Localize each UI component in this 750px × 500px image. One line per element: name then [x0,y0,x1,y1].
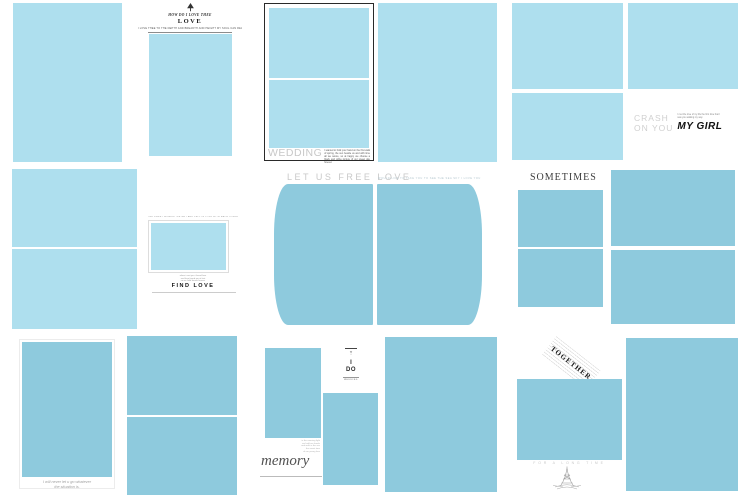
together-subtitle: FOR A LONG TIME [517,461,622,465]
find-love-top-note: THE SWEET MOMENT WE MET AND FELL IN LOVE… [146,216,240,218]
photo-placeholder[interactable] [611,170,735,246]
photo-placeholder[interactable] [13,3,122,162]
crash-right-column: I met the love of my life the first time… [677,114,722,133]
wedding-title: WEDDING [268,148,322,159]
circle-ornament-icon: ○ [340,354,362,357]
divider-rule [152,292,236,293]
photo-placeholder[interactable] [269,80,369,148]
photo-placeholder[interactable] [385,337,497,492]
divider-rule [343,377,359,378]
photo-frame [148,220,229,273]
crash-title-line2: ON YOU [634,124,673,134]
photo-placeholder[interactable] [323,393,378,485]
template-crash-on-you[interactable]: CRASH ON YOU I met the love of my life t… [505,0,750,165]
photo-placeholder[interactable] [518,190,603,247]
photo-placeholder[interactable] [127,417,237,495]
crash-note: I met the love of my life the first time… [677,114,721,120]
photo-placeholder[interactable] [626,338,738,491]
love-eyebrow: HOW DO I LOVE THEE [138,13,242,17]
photo-placeholder[interactable] [512,93,623,160]
template-sometimes[interactable]: SOMETIMES [505,165,750,335]
love-heading-block: HOW DO I LOVE THEE LOVE I LOVE THEE TO T… [138,3,242,33]
photo-placeholder[interactable] [12,249,137,329]
find-love-column: THE SWEET MOMENT WE MET AND FELL IN LOVE… [146,165,240,335]
template-love[interactable]: HOW DO I LOVE THEE LOVE I LOVE THEE TO T… [0,0,250,165]
photo-placeholder[interactable] [127,336,237,415]
crash-title: CRASH ON YOU [634,114,673,133]
caption-line: the situation is. [20,485,114,490]
template-wedding[interactable]: WEDDING I wanted to hold your hand on th… [250,0,505,165]
photo-placeholder[interactable] [628,3,738,89]
never-let-go-caption: I will never let u go whatever the situa… [20,480,114,489]
photo-placeholder[interactable] [149,34,232,156]
template-free-love[interactable]: LET US FREE LOVE WOULD LIKE TO TAKE YOU … [250,165,505,335]
template-together[interactable]: TOGETHER FOR A LONG TIME [505,335,750,500]
photo-placeholder[interactable] [517,379,622,460]
template-sheet: HOW DO I LOVE THEE LOVE I LOVE THEE TO T… [0,0,750,500]
template-find-love[interactable]: THE SWEET MOMENT WE MET AND FELL IN LOVE… [0,165,250,335]
crash-subtitle: MY GIRL [677,121,722,132]
photo-placeholder[interactable] [12,169,137,247]
template-never-let-go[interactable]: I will never let u go whatever the situa… [0,335,250,500]
i-do-block: ✳ ○ I DO WEDDING [340,348,362,381]
divider-rule [148,32,232,33]
photo-placeholder[interactable] [274,184,373,325]
divider-rule [260,476,322,477]
divider-rule [345,348,357,349]
find-love-notes: when i met you i found love and love fou… [146,275,240,283]
photo-placeholder[interactable] [611,250,735,324]
crash-text-block: CRASH ON YOU I met the love of my life t… [634,114,722,133]
free-love-note: WOULD LIKE TO TAKE YOU TO SEE THE SEA SK… [378,177,498,180]
photo-placeholder[interactable] [151,223,226,270]
together-title-text: TOGETHER [549,345,593,382]
love-title: LOVE [138,18,242,25]
photo-placeholder[interactable] [378,3,497,162]
wedding-footer: WEDDING I wanted to hold your hand on th… [268,148,370,165]
photo-placeholder[interactable] [269,8,369,78]
i-do-word1: I [340,360,362,367]
bordered-page: WEDDING I wanted to hold your hand on th… [264,3,374,161]
photo-placeholder[interactable] [518,249,603,307]
photo-placeholder[interactable] [377,184,482,325]
sometimes-title: SOMETIMES [530,172,597,183]
i-do-word2: DO [340,367,362,374]
memory-title: memory [261,453,325,470]
template-memory[interactable]: ✳ ○ I DO WEDDING in the morning light we… [250,335,505,500]
tree-icon [186,3,195,12]
wedding-caption: I wanted to hold your hand on the first … [324,150,370,165]
photo-placeholder[interactable] [512,3,623,89]
love-caption: I LOVE THEE TO THE DEPTH AND BREADTH AND… [138,27,242,30]
photo-placeholder[interactable] [22,342,112,477]
find-love-title: FIND LOVE [146,283,240,289]
i-do-small-label: WEDDING [340,379,362,381]
eiffel-tower-sketch-icon [551,466,583,490]
photo-frame: I will never let u go whatever the situa… [19,339,115,489]
memory-notes: in the morning light we hold our hands a… [262,440,320,454]
photo-placeholder[interactable] [265,348,321,438]
